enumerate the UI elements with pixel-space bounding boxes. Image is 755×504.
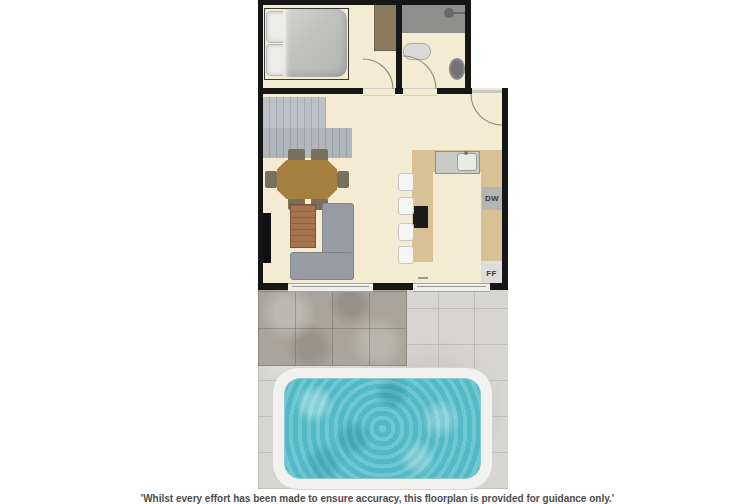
wall-left-main [258,88,263,290]
disclaimer-text: 'Whilst every effort has been made to en… [0,493,755,504]
wall-mid-seg1 [258,88,363,94]
shower-arm [454,12,465,14]
bedroom-door-threshold [363,88,395,96]
coffee-table [290,204,316,248]
bathroom-basin [403,43,431,60]
toilet [449,58,465,80]
dining-chair [311,149,328,161]
dining-chair [288,149,305,161]
bar-stool [398,246,414,264]
staircase-upper [263,97,326,128]
wardrobe [374,3,398,51]
wall-top [258,0,471,5]
sliding-door-right [413,283,490,292]
bar-stool [398,197,414,215]
staircase-lower [263,128,352,158]
shower-tray [402,4,465,33]
wall-mid-seg3 [437,88,472,94]
wall-mid-seg2 [395,88,403,94]
swimming-pool [284,378,481,479]
dimension-tick [418,277,428,279]
kitchen-faucet-icon [464,151,468,155]
sliding-door-right-rail [417,286,486,287]
shower-head-icon [444,8,454,18]
wall-bottom-seg3 [490,283,508,290]
sliding-door-left [288,283,373,292]
dining-chair [265,171,277,188]
corner-sofa-horizontal [290,252,354,280]
fridge-freezer-label: FF [481,261,502,285]
bathroom-door-threshold [403,88,437,96]
dining-table [277,160,337,199]
bar-stool [398,173,414,191]
fridge-freezer-text: FF [486,269,497,278]
wall-left-upper [258,0,263,93]
bar-stool [398,223,414,241]
kitchen-hob [413,206,428,228]
wall-right-upper [465,0,471,93]
dimension-tick [293,277,303,279]
wall-tv [263,213,271,263]
wall-bottom-seg1 [258,283,288,290]
dishwasher-text: DW [485,194,499,203]
dishwasher-label: DW [482,187,502,210]
wall-bottom-seg2 [373,283,413,290]
kitchen-sink-basin [457,153,477,171]
wall-bed-bath-divider [396,0,402,89]
floorplan-canvas: DW FF 'Whilst every effort has been made… [0,0,755,504]
bed-duvet [283,9,347,77]
patio-dark-tiles [258,290,407,366]
sliding-door-left-rail [292,286,369,287]
dining-chair [337,171,349,188]
entrance-threshold [472,90,502,93]
wall-right-main [502,88,508,290]
